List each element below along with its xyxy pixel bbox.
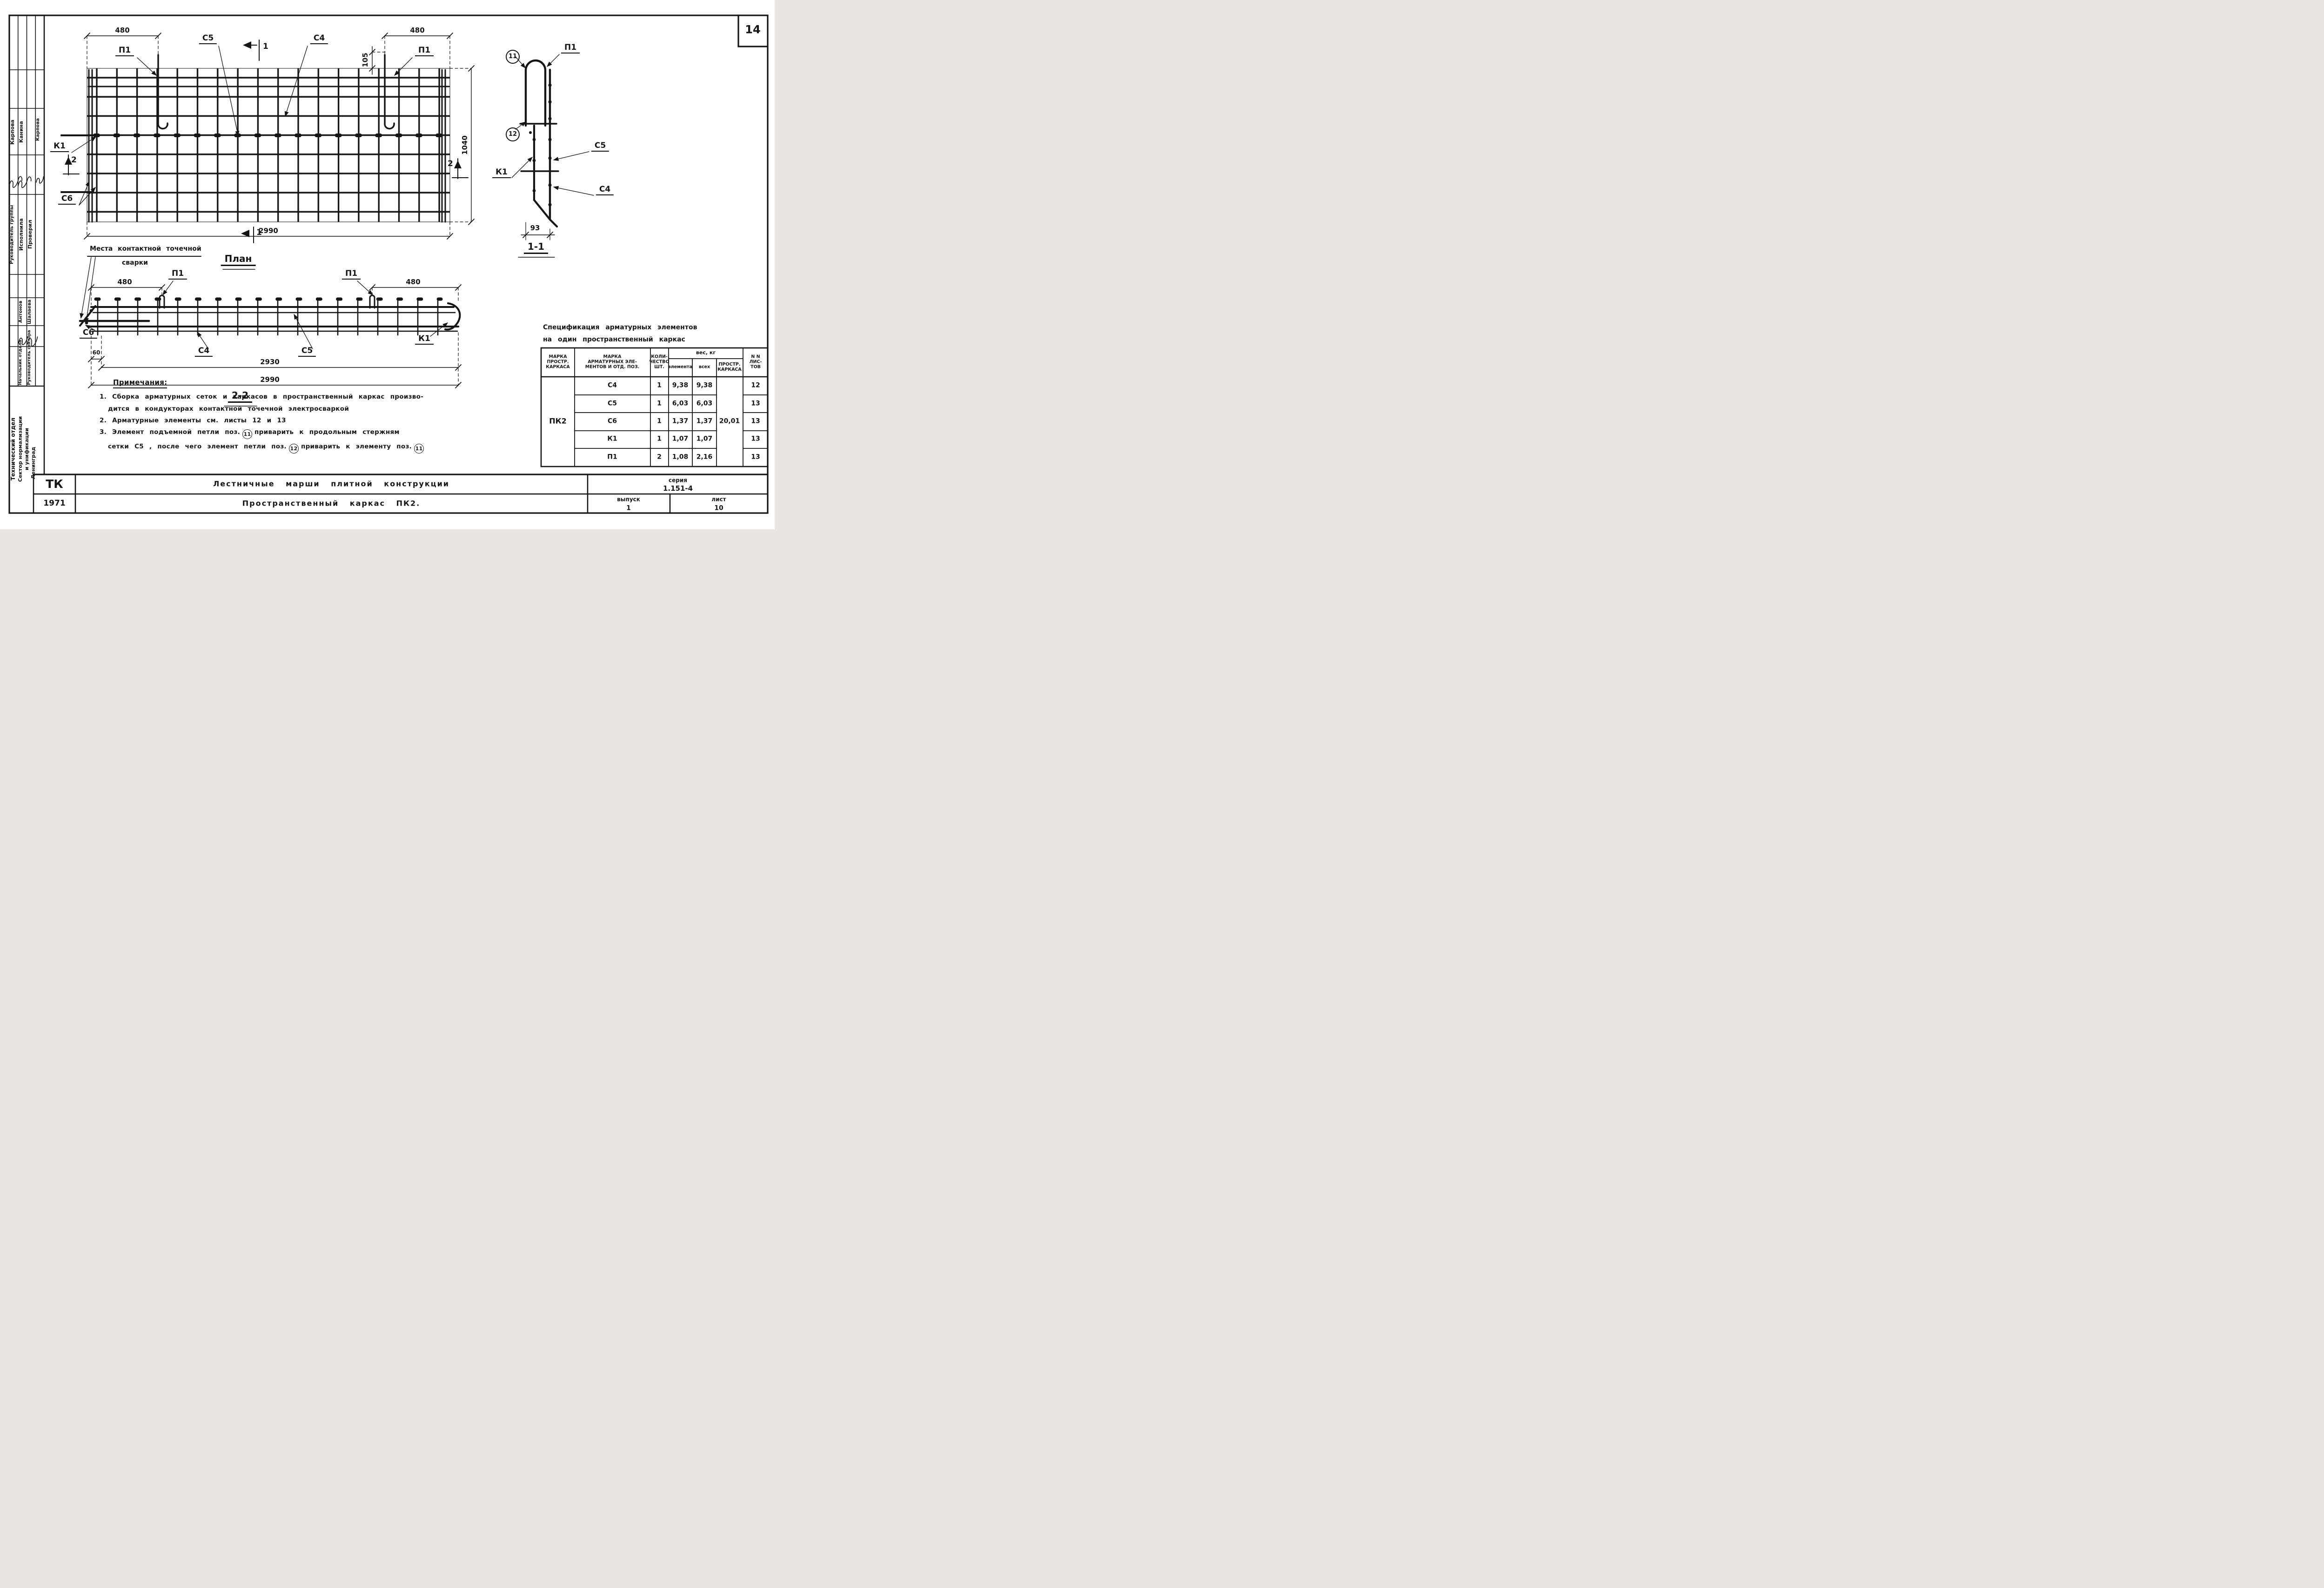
- spec-cell-sheet: 13: [751, 436, 760, 443]
- sidebar-role-group-lead: Руководитель группы: [9, 196, 18, 273]
- spec-cell-sheet: 13: [751, 454, 760, 461]
- spec-title-line1: Спецификация арматурных элементов: [543, 324, 697, 331]
- s22-label-k1: К1: [415, 335, 434, 345]
- sidebar-org-line1: Технический отдел: [10, 391, 17, 507]
- s11-label-c5: С5: [591, 142, 609, 152]
- plan-section-mark-1-top: 1: [263, 43, 268, 51]
- spec-cell-mark: С4: [608, 382, 617, 389]
- note-3-pos11b-balloon: 11: [414, 444, 424, 454]
- series-label: серия: [669, 478, 687, 484]
- note-3-line1: 3. Элемент подъемной петли поз.11привари…: [100, 429, 400, 439]
- plan-dim-1040: 1040: [462, 135, 469, 155]
- sidebar-org-line2: Сектор нормализации: [17, 391, 24, 507]
- s22-dim-2930: 2930: [260, 359, 280, 366]
- notes-heading: Примечания:: [113, 379, 167, 388]
- plan-title: План: [221, 254, 256, 266]
- drawing-title-line2: Пространственный каркас ПК2.: [242, 500, 421, 508]
- spec-cell-w-el: 1,08: [672, 454, 689, 461]
- spec-cell-sheet: 12: [751, 382, 760, 389]
- note-2: 2. Арматурные элементы см. листы 12 и 13: [100, 417, 286, 424]
- drawing-sheet: 14 480 480 П1 С5 С4 П1 1 1 2 2 105 1040 …: [0, 0, 775, 529]
- spec-cell-qty: 1: [657, 400, 662, 407]
- note-1-line1: 1. Сборка арматурных сеток и каркасов в …: [100, 394, 423, 400]
- spec-cell-w-all: 9,38: [697, 382, 713, 389]
- plan-dim-105: 105: [362, 53, 369, 67]
- s11-pos-11-balloon: 11: [506, 50, 520, 64]
- spec-cell-sheet: 13: [751, 418, 760, 425]
- sidebar-name-head-sector: Шалаева: [27, 299, 36, 325]
- s11-title: 1-1: [524, 242, 548, 254]
- s22-dim-480-left: 480: [117, 279, 132, 286]
- spec-title-line2: на один пространственный каркас: [543, 336, 685, 343]
- s22-dim-60: 60: [93, 350, 100, 356]
- plan-label-c4: С4: [310, 34, 328, 44]
- s22-label-c4: С4: [195, 347, 213, 357]
- plan-label-p1-right: П1: [415, 47, 434, 56]
- page-number: 14: [745, 24, 760, 35]
- plan-section-mark-2-left: 2: [71, 156, 77, 165]
- weld-note-line1: Места контактной точечной: [90, 246, 201, 253]
- sidebar-name-executor: Канина: [18, 111, 27, 153]
- s22-label-p1-left: П1: [168, 270, 187, 280]
- spec-header-weight-frame: ПРОСТР. КАРКАСА: [717, 362, 742, 373]
- spec-cell-qty: 1: [657, 436, 662, 443]
- spec-cell-mark: С6: [608, 418, 617, 425]
- spec-header-mark-frame: МАРКА ПРОСТР. КАРКАСА: [546, 355, 570, 370]
- spec-cell-w-all: 2,16: [697, 454, 713, 461]
- plan-section-mark-2-right: 2: [448, 160, 453, 168]
- sidebar-org-city: Ленинград: [30, 419, 37, 507]
- s22-dim-2990: 2990: [260, 376, 280, 384]
- note-3-pos11-balloon: 11: [242, 429, 252, 439]
- sidebar-role-head-dept: Начальник отдела: [18, 347, 27, 385]
- plan-label-c5: С5: [199, 34, 217, 44]
- spec-header-qty: КОЛИ- ЧЕСТВО ШТ.: [650, 355, 670, 370]
- s22-label-c6: С6: [80, 329, 97, 339]
- sidebar-role-checker: Проверил: [27, 196, 36, 273]
- plan-dim-2990: 2990: [259, 227, 278, 235]
- spec-header-sheets: N N ЛИС- ТОВ: [750, 355, 762, 370]
- weld-note-line2: сварки: [122, 260, 148, 267]
- s22-label-p1-right: П1: [342, 270, 361, 280]
- spec-cell-mark: К1: [607, 436, 617, 443]
- series-value: 1.151-4: [663, 485, 693, 493]
- spec-header-weight-all: всех: [699, 365, 710, 370]
- s11-label-k1: К1: [492, 168, 511, 178]
- spec-header-weight-element: элемента: [668, 365, 692, 370]
- plan-label-c6: С6: [58, 195, 76, 205]
- s11-label-c4: С4: [596, 186, 614, 195]
- spec-cell-w-el: 1,37: [672, 418, 689, 425]
- sheet-label: лист: [711, 497, 726, 503]
- s11-dim-93: 93: [530, 225, 540, 232]
- spec-cell-w-all: 1,07: [697, 436, 713, 443]
- spec-cell-w-el: 6,03: [672, 400, 689, 407]
- sheet-value: 10: [714, 505, 723, 512]
- drawing-title-line1: Лестничные марши плитной конструкции: [213, 480, 449, 488]
- spec-cell-w-all: 6,03: [697, 400, 713, 407]
- spec-cell-w-el: 1,07: [672, 436, 689, 443]
- sidebar-role-head-sector: Руководитель сектора: [27, 347, 36, 385]
- s11-label-p1: П1: [561, 44, 580, 53]
- spec-cell-mark: П1: [607, 454, 617, 461]
- spec-cell-qty: 1: [657, 418, 662, 425]
- spec-cell-sheet: 13: [751, 400, 760, 407]
- spec-header-mark-elements: МАРКА АРМАТУРНЫХ ЭЛЕ- МЕНТОВ И ОТД. ПОЗ.: [585, 355, 640, 370]
- spec-header-weight-group: вес, кг: [696, 350, 716, 356]
- sidebar-name-checker: Карпова: [35, 108, 44, 151]
- plan-dim-480-right: 480: [410, 27, 424, 34]
- s22-label-c5: С5: [298, 347, 316, 357]
- note-3-pos12-balloon: 12: [289, 444, 299, 454]
- sidebar-org-line3: и унификации: [24, 391, 30, 507]
- note-1-line2: дится в кондукторах контактной точечной …: [108, 406, 349, 412]
- note-3-line2: сетки С5 , после чего элемент петли поз.…: [108, 443, 426, 454]
- spec-cell-w-all: 1,37: [697, 418, 713, 425]
- year: 1971: [43, 500, 65, 508]
- note-3-text: приварить к продольным стержням: [255, 428, 400, 436]
- plan-label-p1-left: П1: [115, 47, 134, 56]
- s11-pos-12-balloon: 12: [506, 127, 520, 141]
- spec-cell-w-el: 9,38: [672, 382, 689, 389]
- note-3-text: 3. Элемент подъемной петли поз.: [100, 428, 240, 436]
- issue-value: 1: [626, 505, 631, 512]
- sidebar-role-executor: Исполнила: [18, 196, 27, 273]
- org-code: ТК: [46, 478, 63, 490]
- spec-cell-qty: 2: [657, 454, 662, 461]
- issue-label: выпуск: [617, 497, 640, 503]
- sidebar-name-group-lead: Карпова: [9, 111, 18, 153]
- sidebar-name-head-dept: Антонов: [18, 299, 27, 325]
- plan-dim-480-left: 480: [115, 27, 129, 34]
- note-3-text: приварить к элементу поз.: [301, 443, 412, 450]
- plan-label-k1: К1: [50, 142, 69, 152]
- spec-cell-mark: С5: [608, 400, 617, 407]
- spec-cell-qty: 1: [657, 382, 662, 389]
- note-3-text: сетки С5 , после чего элемент петли поз.: [108, 443, 287, 450]
- spec-frame-mark: ПК2: [549, 418, 567, 426]
- spec-frame-weight: 20,01: [719, 418, 740, 425]
- s22-dim-480-right: 480: [406, 279, 420, 286]
